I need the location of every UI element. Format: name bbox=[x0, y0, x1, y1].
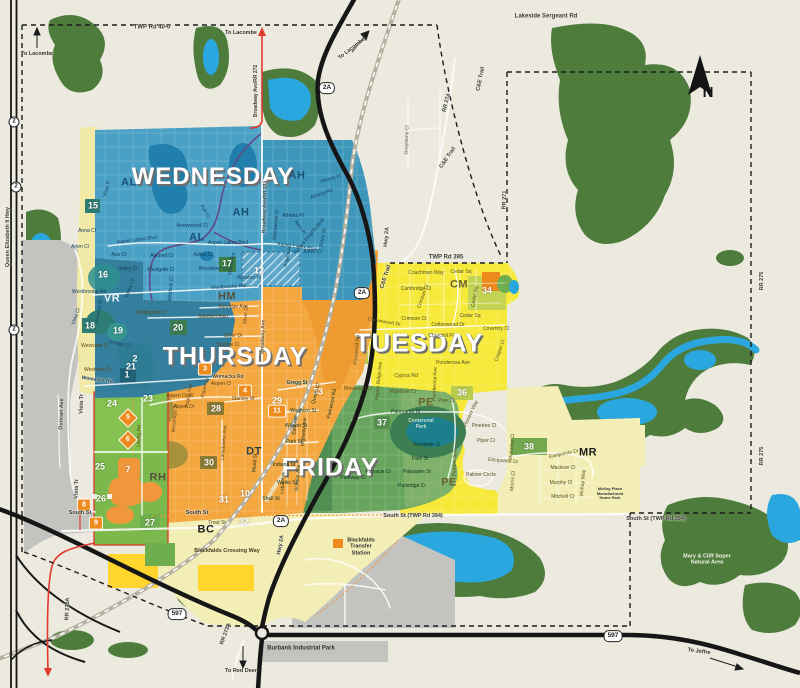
street-label-aztec-st: Aztec St bbox=[319, 228, 328, 247]
road-label-south-st-twp-rd-394: South St (TWP Rd 394) bbox=[626, 516, 685, 522]
street-label-highway-ave: Highway Ave bbox=[301, 417, 309, 446]
zone-number-27: 27 bbox=[145, 518, 155, 529]
street-label-pinetree-cl: Pinetree Cl bbox=[472, 424, 497, 430]
street-label-westview-cr: Westview Cr bbox=[84, 368, 112, 374]
street-label-coachman-way: Coachman Way bbox=[408, 271, 443, 277]
street-label-anna-cl: Anna Cl bbox=[78, 229, 96, 235]
road-label-twp-rd-395: TWP Rd 395 bbox=[429, 254, 464, 261]
zone-number-24: 24 bbox=[107, 399, 117, 410]
street-label-adina-cl: Adina Cl bbox=[194, 253, 213, 259]
place-label-blackfalds-transfer-station: Blackfalds Transfer Station bbox=[347, 537, 375, 556]
street-label-eastpointe-dr: Eastpointe Dr bbox=[549, 449, 580, 461]
direction-label-to-lacombe: To Lacombe bbox=[21, 51, 53, 57]
road-label-south-st: South St bbox=[69, 510, 92, 516]
street-label-eastpointe-dr: Eastpointe Dr bbox=[488, 458, 519, 467]
zone-number-30: 30 bbox=[204, 458, 214, 469]
street-label-winks-st: Winks St bbox=[277, 481, 297, 487]
code-cm: CM bbox=[450, 279, 468, 292]
zone-number-31: 31 bbox=[219, 495, 229, 506]
street-label-ava-cr: Ava Cr bbox=[111, 253, 126, 259]
code-rh: RH bbox=[150, 472, 167, 485]
street-label-valley-cl: Valley Cl bbox=[125, 279, 137, 299]
place-label-mckay-place-manufactured-home-park: McKay Place Manufactured Home Park bbox=[597, 487, 623, 501]
street-label-parkway-cl: Parkway Cl bbox=[340, 476, 365, 482]
place-label-mary-cliff-soper-natural-area: Mary & Cliff Soper Natural Area bbox=[683, 554, 731, 567]
street-label-churchill-pl: Churchill Pl bbox=[428, 334, 453, 340]
direction-label-to-lacombe: To Lacombe bbox=[337, 37, 366, 62]
road-label-broadway-ave-rr-272: Broadway Ave/RR 272 bbox=[254, 65, 260, 117]
street-label-trout-st: Trout St bbox=[208, 521, 226, 527]
road-label-twp-rd-40-0: TWP Rd 40-0 bbox=[134, 24, 171, 31]
road-label-c-e-trail: C&E Trail bbox=[379, 264, 393, 289]
street-label-valley-cr: Valley Cr bbox=[118, 267, 138, 273]
shield-2a: 2A bbox=[319, 82, 335, 94]
road-label-c-e-trail: C&E Trail bbox=[475, 66, 486, 91]
zone-number-19: 19 bbox=[113, 326, 123, 337]
street-label-pinewood-rd: Pinewood Rd bbox=[354, 335, 362, 365]
circle-shield-2: 2 bbox=[9, 325, 20, 336]
direction-label-to-joffre: To Joffre bbox=[687, 647, 711, 657]
zone-number-16: 16 bbox=[98, 270, 108, 281]
street-label-stanley-st: Stanley St bbox=[232, 397, 255, 403]
street-label-indiana-st: Indiana St bbox=[273, 463, 296, 469]
street-label-palisades-st: Palisades St bbox=[403, 470, 431, 476]
street-label-poplar-ave: Poplar Ave bbox=[185, 384, 195, 409]
road-label-queen-elizabeth-ii-hwy: Queen Elizabeth II Hwy bbox=[5, 207, 11, 267]
zone-number-21: 21 bbox=[126, 362, 136, 373]
street-label-westbrooke-rd: Westbrooke Rd bbox=[211, 284, 246, 292]
orange-badge-3: 3 bbox=[198, 363, 212, 376]
zone-number-17: 17 bbox=[222, 259, 232, 270]
orange-badge-11: 11 bbox=[268, 405, 286, 418]
road-label-womacks-rd: Womacks Rd bbox=[81, 376, 113, 386]
road-label-east-railway-st: East Railway St bbox=[265, 469, 290, 503]
street-label-whitlock-cl: Whitlock Cl bbox=[168, 276, 176, 301]
code-mr: MR bbox=[579, 447, 597, 460]
street-label-pinnacle-cl: Pinnacle Cl bbox=[365, 470, 390, 476]
street-label-pinewood-cl: Pinewood Cl bbox=[344, 387, 372, 393]
circle-shield-2: 2 bbox=[11, 182, 22, 193]
street-label-ponderosa-ave: Ponderosa Ave bbox=[436, 361, 470, 367]
direction-label-to-lacombe: To Lacombe bbox=[225, 30, 257, 36]
street-label-cedar-sq: Cedar Sq bbox=[450, 270, 471, 276]
direction-label-to-red-deer: To Red Deer bbox=[225, 668, 257, 674]
day-friday: FRIDAY bbox=[282, 453, 379, 483]
zone-number-15: 15 bbox=[88, 201, 98, 212]
code-al: AL bbox=[189, 232, 205, 245]
street-label-cottonwood-dr: Cottonwood Dr bbox=[367, 317, 401, 329]
street-label-leung-rd: Leung Rd bbox=[136, 425, 143, 447]
code-ah: AH bbox=[233, 207, 250, 220]
street-label-pioneer-ave: Pioneer Ave bbox=[453, 449, 460, 476]
street-label-aspen-lakes-blvd: Aspen Lakes Blvd bbox=[117, 236, 157, 247]
zone-number-2: 2 bbox=[132, 354, 137, 365]
street-label-westview-cr: Westview Cr bbox=[81, 344, 109, 350]
road-label-gregg-st: Gregg St bbox=[286, 381, 307, 387]
day-wednesday: WEDNESDAY bbox=[132, 163, 295, 191]
street-label-mund-st: Mund St bbox=[252, 453, 259, 472]
code-bc: BC bbox=[198, 524, 215, 537]
street-label-athens-pl: Athens Pl bbox=[282, 214, 303, 220]
zone-number-26: 26 bbox=[96, 494, 106, 505]
street-label-sunrise-cl: Sunrise Cl bbox=[216, 343, 239, 349]
street-label-woodbine-cl: Woodbine Cl bbox=[199, 267, 228, 273]
street-label-vista-cl: Vista Cl bbox=[71, 308, 82, 326]
street-label-cooper-cl: Cooper Cl bbox=[494, 339, 507, 362]
zone-number-28: 28 bbox=[211, 404, 221, 415]
road-label-south-st: South St bbox=[186, 510, 209, 516]
street-label-shull-st: Shull St bbox=[262, 497, 279, 503]
shield-597: 597 bbox=[604, 630, 623, 642]
street-label-waghorn-st: Waghorn St bbox=[290, 409, 316, 415]
collection-schedule-map: WEDNESDAYTHURSDAYTUESDAYFRIDAYALALAHAHVR… bbox=[0, 0, 800, 688]
street-label-aspen-dr-w: Aspen Dr W bbox=[167, 394, 194, 400]
street-label-parkwood-rd: Parkwood Rd bbox=[327, 389, 339, 420]
zone-number-10: 10 bbox=[240, 489, 250, 500]
orange-badge-4: 4 bbox=[238, 385, 252, 398]
street-label-parkridge-cr: Parkridge Cr bbox=[398, 484, 426, 490]
street-label-cedar-sq: Cedar Sq bbox=[471, 286, 480, 308]
street-label-east-ave: East Ave bbox=[292, 415, 300, 435]
zone-number-29: 29 bbox=[272, 396, 282, 407]
street-label-cyprus-rd: Cyprus Rd bbox=[394, 374, 418, 380]
zone-number-1: 1 bbox=[124, 370, 129, 381]
street-label-queen-cl: Queen Cl bbox=[311, 383, 322, 405]
road-label-hwy-2a: Hwy 2A bbox=[276, 535, 286, 556]
street-label-vista-tr: Vista Tr bbox=[103, 180, 113, 198]
street-label-coventry-cl: Coventry Cl bbox=[483, 327, 509, 333]
road-label-south-st-twp-rd-394: South St (TWP Rd 394) bbox=[383, 513, 442, 519]
street-label-almond-cr: Almond Cr bbox=[150, 254, 174, 260]
zone-number-23: 23 bbox=[143, 394, 153, 405]
road-label-broadway-ave: Broadway Ave bbox=[260, 320, 267, 354]
road-label-rr-274: RR 274 bbox=[441, 93, 452, 113]
street-label-pioneer-way: Pioneer Way bbox=[463, 400, 480, 428]
street-label-crimson-cl: Crimson Cl bbox=[417, 284, 431, 309]
street-label-aldenwood-cl: Aldenwood Cl bbox=[273, 209, 282, 240]
zone-number-38: 38 bbox=[524, 442, 534, 453]
street-label-silver-dr: Silver Dr bbox=[243, 305, 251, 325]
street-label-morris-cl: Morris Cl bbox=[510, 471, 518, 491]
road-label-rr-271: RR 271 bbox=[501, 191, 508, 210]
map-labels: WEDNESDAYTHURSDAYTUESDAYFRIDAYALALAHAHVR… bbox=[0, 0, 800, 688]
diamond-badge-6: 6 bbox=[118, 430, 138, 450]
street-label-stanford-blvd: Stanford Blvd bbox=[198, 315, 228, 321]
code-pe: PE bbox=[418, 397, 434, 410]
road-label-vista-tr: Vista Tr bbox=[73, 479, 80, 499]
street-label-murphy-cl: Murphy Cl bbox=[550, 481, 573, 487]
street-label-aspen-cr: Aspen Cr bbox=[200, 377, 211, 399]
street-label-prairie-ridge-ave: Prairie Ridge Ave bbox=[375, 362, 384, 401]
zone-number-12: 12 bbox=[254, 266, 264, 277]
street-label-lotus-ave: Lotus Ave bbox=[280, 472, 288, 494]
street-label-mckinley-cl: McKinley Cl bbox=[509, 434, 517, 461]
day-thursday: THURSDAY bbox=[163, 342, 308, 372]
circle-shield-2: 2 bbox=[9, 117, 20, 128]
road-label-broadway-ave-rr-272: Broadway Ave/RR 272 bbox=[262, 181, 270, 234]
day-tuesday: TUESDAY bbox=[355, 328, 484, 359]
street-label-greystone-cl: Greystone Cl bbox=[405, 125, 412, 154]
street-label-aztec-cr: Aztec Cr bbox=[303, 250, 322, 256]
street-label-westgate-cr: Westgate Cr bbox=[147, 268, 175, 274]
street-label-vintage-cl: Vintage Cl bbox=[107, 340, 131, 350]
zone-number-32: 32 bbox=[239, 517, 249, 528]
street-label-wellington-cl: Wellington Cl bbox=[136, 311, 165, 317]
code-pe: PE bbox=[441, 477, 457, 490]
code-hm: HM bbox=[218, 291, 236, 304]
street-label-vermont-st: Vermont St bbox=[95, 299, 105, 324]
street-label-maclean-cl: Maclean Cl bbox=[550, 466, 575, 472]
place-label-burbank-industrial-park: Burbank Industrial Park bbox=[267, 645, 335, 652]
orange-badge-8: 8 bbox=[77, 499, 91, 512]
street-label-willow-rd: Willow Rd bbox=[228, 253, 238, 276]
code-vr: VR bbox=[104, 293, 120, 306]
street-label-athens-pl: Athens Pl bbox=[320, 174, 342, 185]
street-label-cambridge-cl: Cambridge Cl bbox=[401, 287, 432, 293]
street-label-arlen-cl: Arlen Cl bbox=[71, 245, 89, 251]
street-label-westbrooke-rd: Westbrooke Rd bbox=[72, 290, 106, 296]
street-label-pine-cl: Pine Cl bbox=[438, 399, 454, 405]
road-label-womacks-rd: Womacks Rd bbox=[212, 375, 243, 381]
zone-number-37: 37 bbox=[377, 418, 387, 429]
street-label-ponderosa-ave: Ponderosa Ave bbox=[432, 367, 439, 401]
street-label-cedar-sq: Cedar Sq bbox=[459, 314, 480, 320]
street-label-cottonwood-dr: Cottonwood Dr bbox=[431, 323, 464, 329]
street-label-sunridge-ave: Sunridge Ave bbox=[218, 305, 248, 311]
street-label-winston-pl: Winston Pl bbox=[237, 276, 261, 282]
street-label-plumtree-cr: Plumtree Cr bbox=[390, 390, 417, 396]
street-label-avro-pl: Avro Pl bbox=[292, 220, 306, 237]
road-label-c-e-trail: C&E Trail bbox=[438, 146, 457, 170]
place-label-centennial-park: Centennial Park bbox=[408, 419, 434, 431]
street-label-mitchell-cr: Mitchell Cr bbox=[551, 495, 575, 501]
street-label-palmer-circle: Palmer Circle bbox=[466, 473, 496, 479]
zone-number-7: 7 bbox=[125, 465, 130, 476]
street-label-park-st: Park St bbox=[286, 440, 302, 446]
road-label-rr-272a: RR 272A bbox=[219, 622, 233, 645]
shield-597: 597 bbox=[168, 608, 187, 620]
north-n: N bbox=[703, 84, 714, 102]
street-label-aurora-heights-blvd: Aurora Heights Blvd bbox=[293, 218, 326, 256]
street-label-aspen-cl: Aspen Cl bbox=[211, 382, 231, 388]
street-label-ash-cl: Ash Cl bbox=[198, 204, 210, 220]
street-label-lansdowne-ave: Lansdowne Ave bbox=[221, 425, 230, 461]
code-dt: DT bbox=[246, 446, 262, 459]
street-label-westridge-dr: Westridge Dr bbox=[172, 403, 180, 432]
code-al: AL bbox=[121, 177, 137, 190]
street-label-mckay-way: McKay Way bbox=[580, 470, 588, 497]
road-label-duncan-ave: Duncan Ave bbox=[58, 398, 66, 430]
road-label-lakeside-sergeant-rd: Lakeside Sergeant Rd bbox=[515, 13, 578, 20]
road-label-rr-273a: RR 273A bbox=[64, 598, 71, 621]
street-label-aspen-lakes-blvd: Aspen Lakes Blvd bbox=[208, 241, 248, 247]
zone-number-18: 18 bbox=[85, 321, 95, 332]
street-label-arrowwood-cl: Arrowwood Cl bbox=[176, 224, 207, 230]
road-label-rr-275: RR 275 bbox=[759, 272, 765, 291]
street-label-panorama-dr: Panorama Dr bbox=[391, 410, 421, 416]
diamond-badge-5: 5 bbox=[118, 408, 138, 428]
zone-number-34: 34 bbox=[482, 286, 492, 297]
shield-2a: 2A bbox=[354, 287, 370, 299]
street-label-silver-dr: Silver Dr bbox=[223, 334, 242, 340]
street-label-aspen-dr: Aspen Dr bbox=[174, 405, 195, 411]
street-label-piper-cl: Piper Cl bbox=[477, 439, 495, 445]
street-label-pondside-cr: Pondside Cr bbox=[413, 443, 441, 449]
street-label-athens-rd: Athens Rd bbox=[310, 188, 334, 202]
place-label-blackfalds-crossing-way: Blackfalds Crossing Way bbox=[194, 548, 260, 554]
street-label-willson-st: Willson St bbox=[285, 424, 307, 430]
zone-number-33: 33 bbox=[313, 387, 323, 398]
zone-number-25: 25 bbox=[95, 462, 105, 473]
street-label-crimson-ct: Crimson Ct bbox=[401, 317, 426, 323]
road-label-hwy-2a: Hwy 2A bbox=[383, 227, 391, 247]
street-label-angela-pl: Angela Pl bbox=[283, 246, 294, 268]
street-label-schular-ave: Schular Ave bbox=[295, 464, 303, 491]
zone-number-36: 36 bbox=[457, 388, 467, 399]
street-label-park-st: Park St bbox=[412, 457, 428, 463]
zone-number-20: 20 bbox=[173, 323, 183, 334]
orange-badge-9: 9 bbox=[89, 517, 103, 530]
road-label-rr-275: RR 275 bbox=[759, 447, 765, 466]
road-label-vista-tr: Vista Tr bbox=[78, 394, 85, 414]
shield-2a: 2A bbox=[273, 515, 289, 527]
code-ah: AH bbox=[289, 170, 306, 183]
street-label-aspen-lakes-blvd: Aspen Lakes Blvd bbox=[277, 242, 317, 253]
